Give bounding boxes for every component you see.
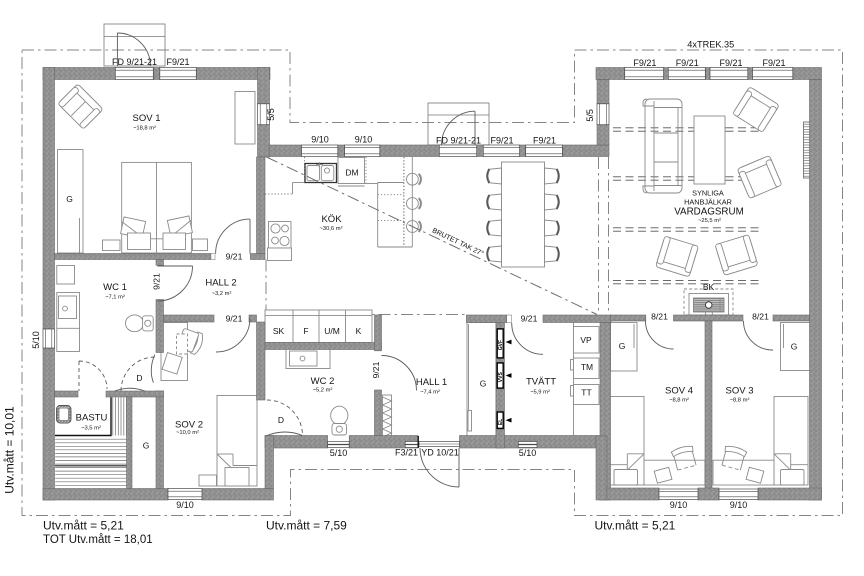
svg-text:~5,9 m²: ~5,9 m² <box>530 390 550 396</box>
svg-text:HALL 1: HALL 1 <box>416 377 447 388</box>
svg-text:~8,8 m²: ~8,8 m² <box>730 398 750 404</box>
svg-text:Utv.mått = 7,59: Utv.mått = 7,59 <box>266 519 347 533</box>
svg-text:G: G <box>143 441 150 451</box>
svg-text:5/5: 5/5 <box>585 109 595 122</box>
svg-text:U/M: U/M <box>324 326 340 336</box>
svg-text:SOV 1: SOV 1 <box>133 113 161 124</box>
svg-text:8/21: 8/21 <box>651 312 668 322</box>
svg-text:TOT Utv.mått = 18,01: TOT Utv.mått = 18,01 <box>43 534 153 546</box>
svg-text:F9/21: F9/21 <box>719 58 742 68</box>
svg-text:9/21: 9/21 <box>226 313 243 323</box>
svg-text:SOV 2: SOV 2 <box>175 420 203 431</box>
svg-text:~18,8 m²: ~18,8 m² <box>133 126 156 132</box>
svg-text:~10,0 m²: ~10,0 m² <box>176 430 199 436</box>
svg-text:G: G <box>791 342 798 352</box>
svg-text:FD 9/21-21: FD 9/21-21 <box>436 136 481 146</box>
svg-text:GVF: GVF <box>498 340 504 350</box>
svg-text:SOV 3: SOV 3 <box>726 386 754 397</box>
svg-text:~25,5 m²: ~25,5 m² <box>698 218 721 224</box>
svg-text:WC 2: WC 2 <box>311 376 335 387</box>
svg-text:TVÄTT: TVÄTT <box>526 377 556 388</box>
svg-text:G: G <box>66 194 73 204</box>
svg-text:~5,2 m²: ~5,2 m² <box>313 388 333 394</box>
svg-text:~7,1 m²: ~7,1 m² <box>105 295 125 301</box>
svg-text:Utv.mått = 5,21: Utv.mått = 5,21 <box>43 519 124 533</box>
svg-text:YD 10/21: YD 10/21 <box>421 448 459 458</box>
svg-text:D: D <box>278 415 284 425</box>
svg-text:~3,2 m²: ~3,2 m² <box>212 291 232 297</box>
svg-text:VP: VP <box>580 335 592 345</box>
svg-text:9/21: 9/21 <box>152 273 162 290</box>
svg-text:VVS: VVS <box>498 372 504 383</box>
svg-text:9/10: 9/10 <box>311 135 329 145</box>
svg-text:BK: BK <box>703 282 715 292</box>
svg-text:K: K <box>356 326 362 336</box>
svg-text:F9/21: F9/21 <box>762 58 785 68</box>
svg-text:Utv.mått = 10,01: Utv.mått = 10,01 <box>3 406 17 494</box>
svg-text:TM: TM <box>581 362 593 372</box>
svg-text:SK: SK <box>273 326 285 336</box>
svg-text:SYNLIGA: SYNLIGA <box>692 189 724 198</box>
svg-text:VARDAGSRUM: VARDAGSRUM <box>674 207 744 218</box>
svg-text:8/21: 8/21 <box>752 312 769 322</box>
svg-text:G: G <box>480 379 487 389</box>
svg-text:F9/21: F9/21 <box>676 58 699 68</box>
svg-text:WC 1: WC 1 <box>103 282 127 293</box>
svg-text:5/10: 5/10 <box>330 448 348 458</box>
svg-text:TT: TT <box>581 388 591 398</box>
svg-text:F3/21: F3/21 <box>395 448 418 458</box>
svg-text:9/10: 9/10 <box>355 135 373 145</box>
svg-text:DM: DM <box>345 168 358 178</box>
svg-text:9/21: 9/21 <box>521 313 538 323</box>
svg-text:9/10: 9/10 <box>730 500 748 510</box>
svg-text:9/21: 9/21 <box>371 361 381 378</box>
svg-text:SOV 4: SOV 4 <box>665 386 693 397</box>
svg-text:9/21: 9/21 <box>226 251 243 261</box>
svg-text:~3,5 m²: ~3,5 m² <box>81 426 101 432</box>
svg-text:FD 9/21-21: FD 9/21-21 <box>112 57 157 67</box>
svg-text:9/10: 9/10 <box>176 500 194 510</box>
svg-text:Utv.mått = 5,21: Utv.mått = 5,21 <box>595 519 676 533</box>
svg-text:D: D <box>136 373 142 383</box>
svg-text:5/5: 5/5 <box>266 108 276 121</box>
svg-text:~30,6 m²: ~30,6 m² <box>319 226 342 232</box>
svg-text:G: G <box>619 341 626 351</box>
svg-text:BASTU: BASTU <box>76 413 108 424</box>
svg-text:~7,4 m²: ~7,4 m² <box>420 390 440 396</box>
svg-text:F9/21: F9/21 <box>533 136 556 146</box>
svg-text:EL: EL <box>498 419 504 425</box>
svg-text:4xTREK.35: 4xTREK.35 <box>687 39 734 49</box>
svg-text:HANBJÄLKAR: HANBJÄLKAR <box>684 198 732 207</box>
svg-text:F: F <box>303 326 308 336</box>
svg-text:5/10: 5/10 <box>31 331 41 349</box>
svg-text:5/10: 5/10 <box>519 448 537 458</box>
svg-text:F9/21: F9/21 <box>166 57 189 67</box>
svg-text:HALL 2: HALL 2 <box>205 278 236 289</box>
svg-text:F9/21: F9/21 <box>633 58 656 68</box>
svg-text:KÖK: KÖK <box>321 214 342 225</box>
svg-text:9/10: 9/10 <box>670 500 688 510</box>
svg-text:F9/21: F9/21 <box>490 136 513 146</box>
svg-text:~8,8 m²: ~8,8 m² <box>669 398 689 404</box>
